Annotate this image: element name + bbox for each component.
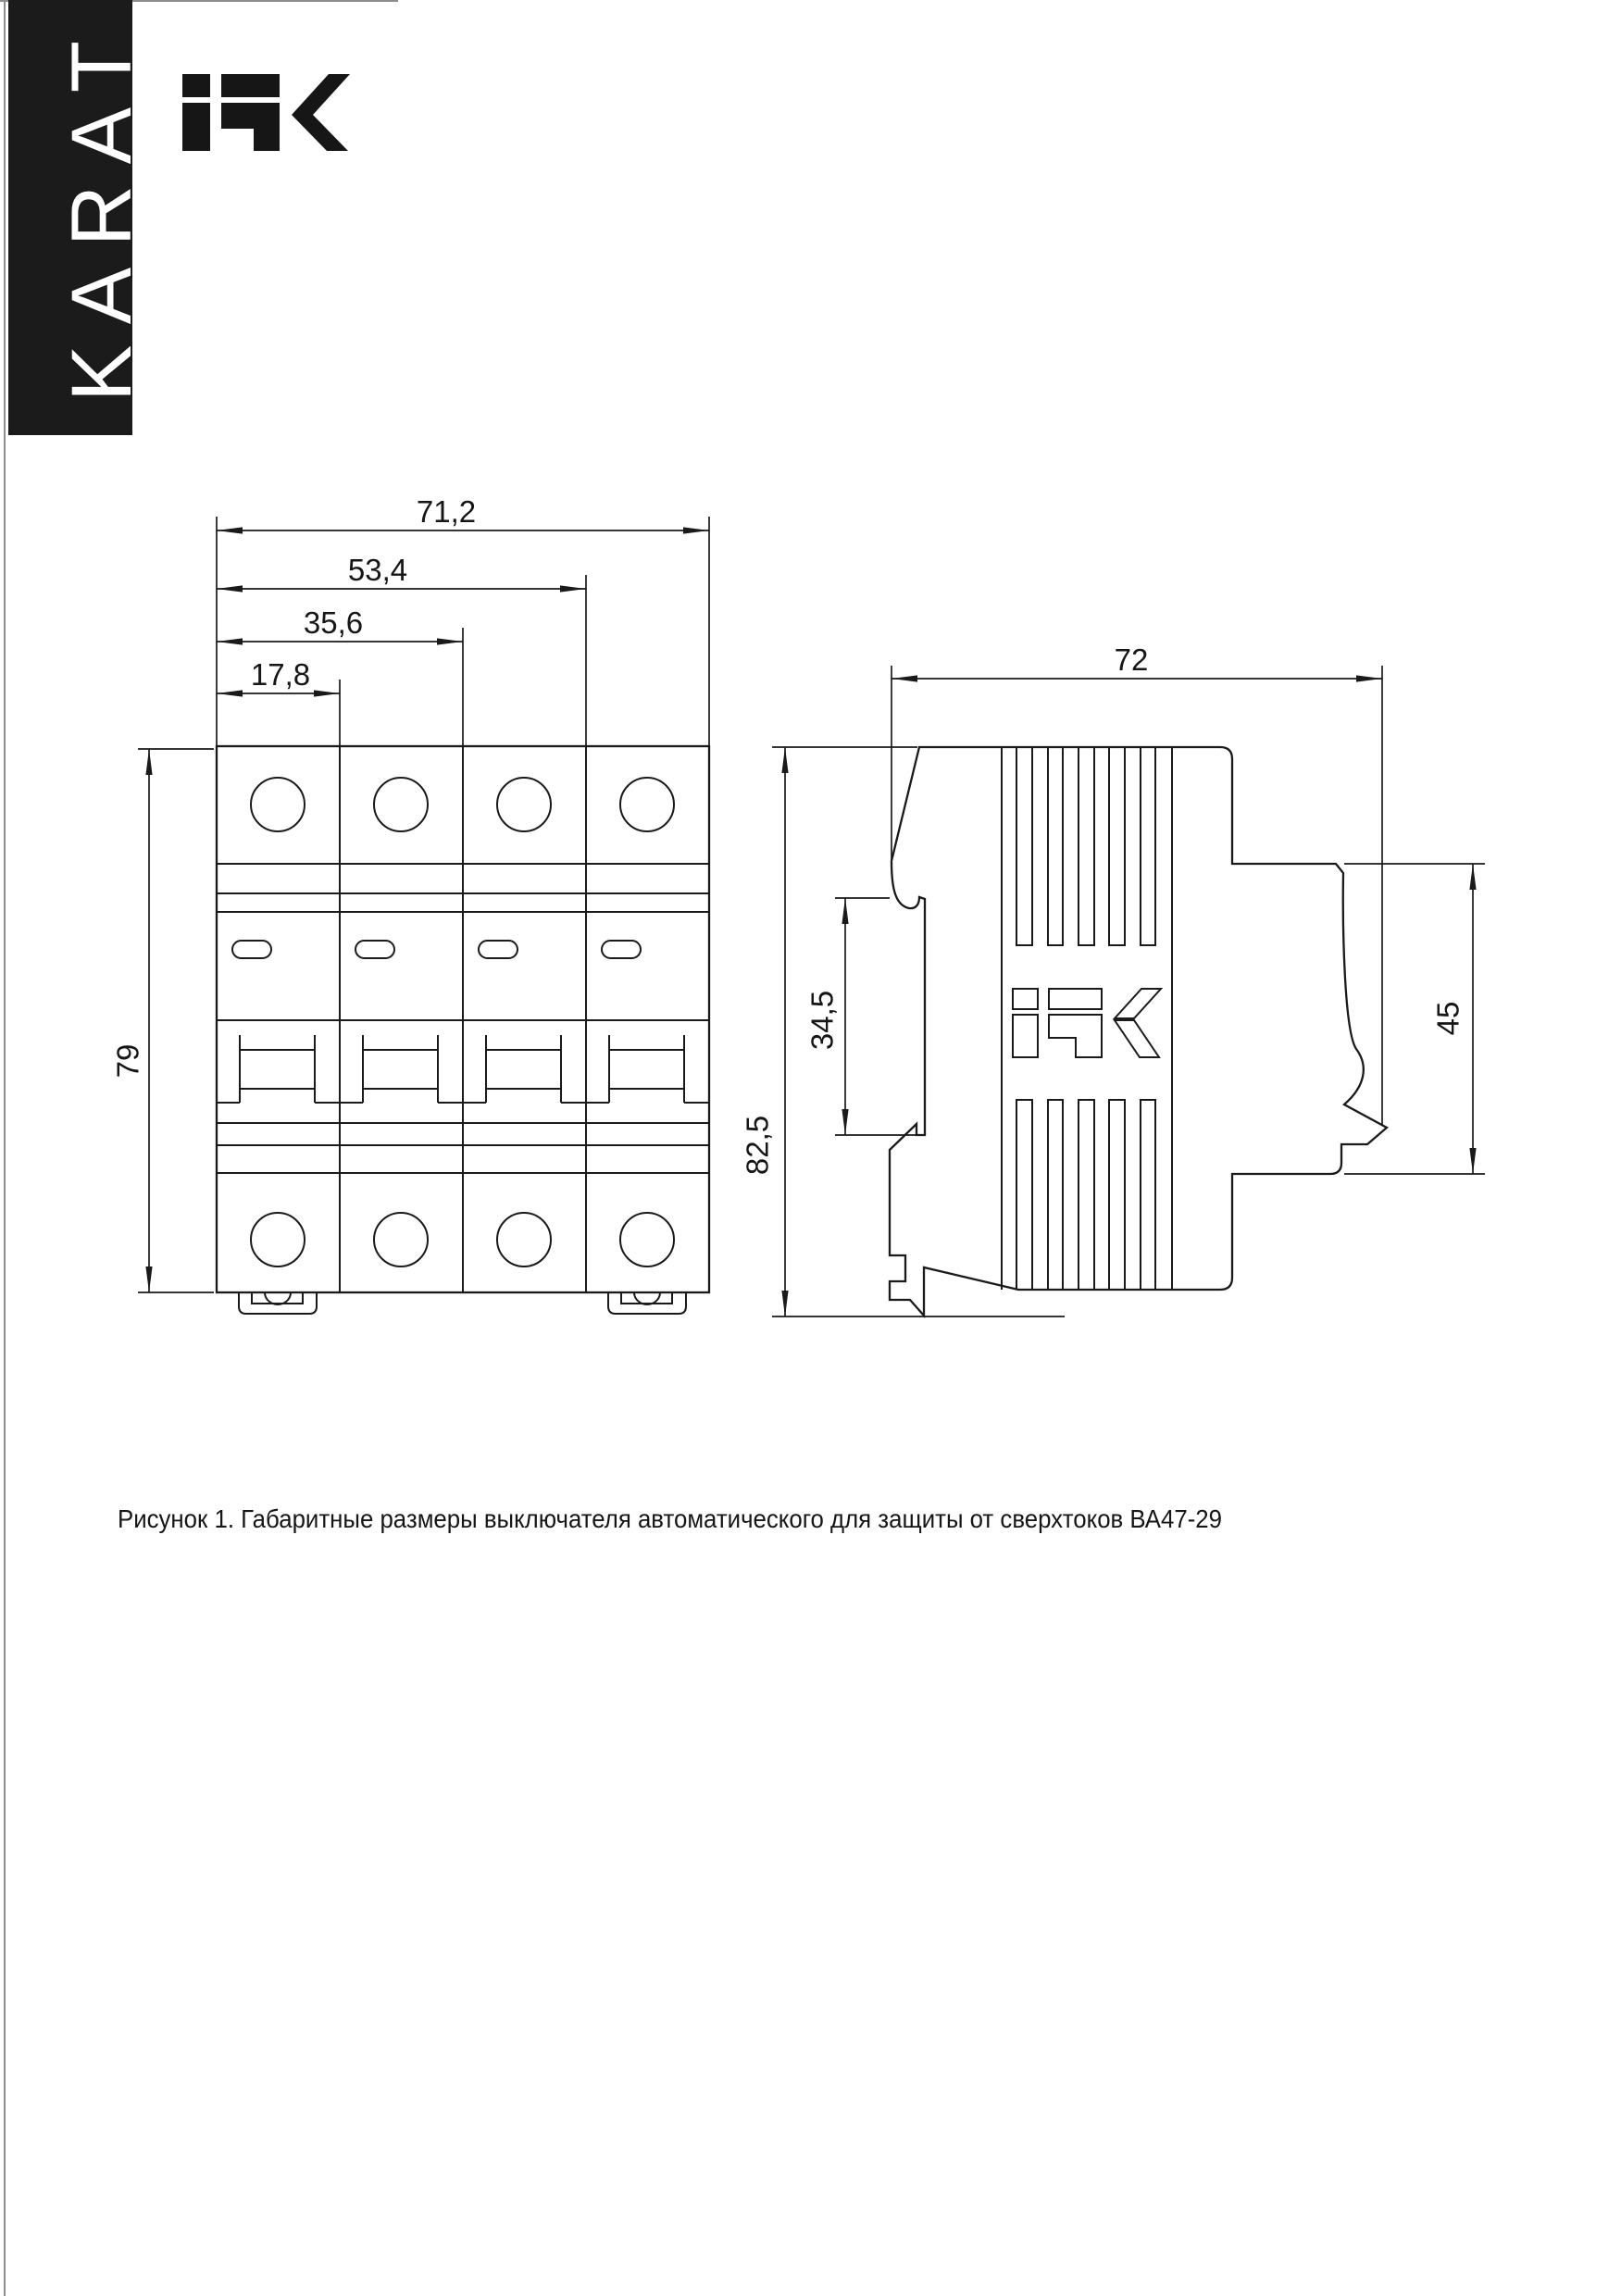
logo-e-top-bar: [221, 74, 280, 97]
dim-label-total-width: 71,2: [417, 494, 476, 529]
logo-k-lower-arm: [292, 115, 348, 151]
din-rail-clip-left: [239, 1292, 317, 1314]
dim-label-height: 79: [111, 1044, 145, 1079]
side-view: 72 82,5 34,5 45: [741, 643, 1486, 1316]
banner-label: KARAT: [55, 39, 149, 402]
dim-label-one-module: 17,8: [251, 657, 310, 692]
logo-i-body: [182, 103, 210, 151]
logo-i-dot: [182, 74, 210, 97]
dim-label-depth: 72: [1115, 643, 1149, 677]
front-view: 71,2 53,4 35,6 17,8 79: [111, 494, 710, 1314]
din-rail-clip-right: [608, 1292, 686, 1314]
figure-caption: Рисунок 1. Габаритные размеры выключател…: [118, 1504, 1222, 1533]
dim-label-front-depth: 45: [1431, 1002, 1465, 1036]
iek-logo: [182, 74, 350, 151]
logo-k-upper-arm: [292, 74, 350, 115]
dim-label-total-height: 82,5: [741, 1116, 775, 1175]
dim-label-three-modules: 53,4: [348, 553, 407, 587]
logo-e-body: [221, 103, 280, 151]
document-page: KARAT 71,2 53,4 35,6 17,8: [0, 0, 1621, 2296]
dim-label-din-slot: 34,5: [805, 991, 840, 1050]
breaker-body-side-profile: [890, 747, 1387, 1316]
dim-label-two-modules: 35,6: [304, 605, 363, 640]
karat-banner: KARAT: [8, 0, 149, 435]
